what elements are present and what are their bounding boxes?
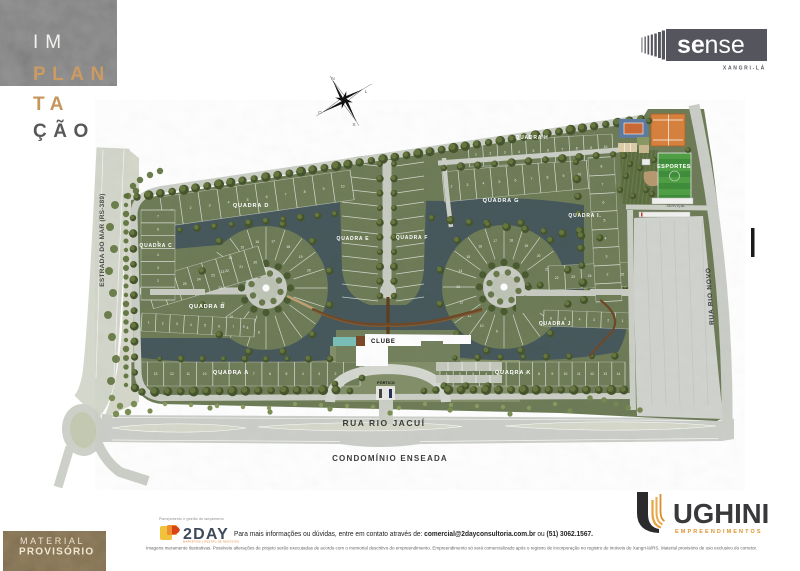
- svg-text:QUADRA D: QUADRA D: [233, 203, 269, 209]
- svg-text:Planejamento e gestão de lança: Planejamento e gestão de lançamento: [159, 517, 224, 521]
- svg-text:se: se: [677, 31, 705, 59]
- svg-text:QUADRA I.: QUADRA I.: [568, 213, 601, 219]
- svg-text:Para mais informações ou dúvid: Para mais informações ou dúvidas, entre …: [234, 529, 593, 538]
- svg-text:QUADRA A: QUADRA A: [213, 370, 249, 376]
- svg-text:L: L: [365, 89, 368, 95]
- svg-text:Imagens meramente ilustrativas: Imagens meramente ilustrativas. Possívei…: [146, 546, 757, 551]
- svg-text:PROVISÓRIO: PROVISÓRIO: [19, 545, 94, 558]
- svg-text:ESPORTES: ESPORTES: [657, 164, 691, 170]
- svg-text:ESTRADA DO MAR (RS-389): ESTRADA DO MAR (RS-389): [99, 193, 106, 286]
- svg-text:PLAN: PLAN: [33, 64, 111, 85]
- svg-text:QUADRA G: QUADRA G: [483, 198, 520, 204]
- svg-text:QUADRA B: QUADRA B: [189, 304, 225, 310]
- svg-text:MATERIAL: MATERIAL: [20, 536, 85, 546]
- svg-text:IM: IM: [33, 32, 68, 53]
- svg-text:RUA RIO JACUÍ: RUA RIO JACUÍ: [343, 418, 426, 428]
- svg-text:QUADRA F: QUADRA F: [396, 235, 429, 241]
- svg-text:N: N: [331, 76, 335, 82]
- svg-text:CONDOMÍNIO ENSEADA: CONDOMÍNIO ENSEADA: [332, 454, 448, 463]
- svg-text:EMPREENDIMENTOS: EMPREENDIMENTOS: [675, 529, 763, 535]
- svg-text:TA: TA: [33, 94, 70, 115]
- svg-text:QUADRA J: QUADRA J: [539, 321, 571, 327]
- svg-text:QUADRA K: QUADRA K: [495, 370, 531, 376]
- svg-text:QUADRA H: QUADRA H: [515, 135, 548, 141]
- svg-text:ÇÃO: ÇÃO: [33, 120, 95, 142]
- svg-text:UGHINI: UGHINI: [673, 498, 769, 529]
- svg-text:nse: nse: [705, 31, 745, 59]
- svg-text:QUADRA C: QUADRA C: [139, 243, 172, 249]
- svg-text:XANGRI-LÁ: XANGRI-LÁ: [723, 65, 766, 72]
- svg-text:QUADRA E: QUADRA E: [337, 236, 370, 242]
